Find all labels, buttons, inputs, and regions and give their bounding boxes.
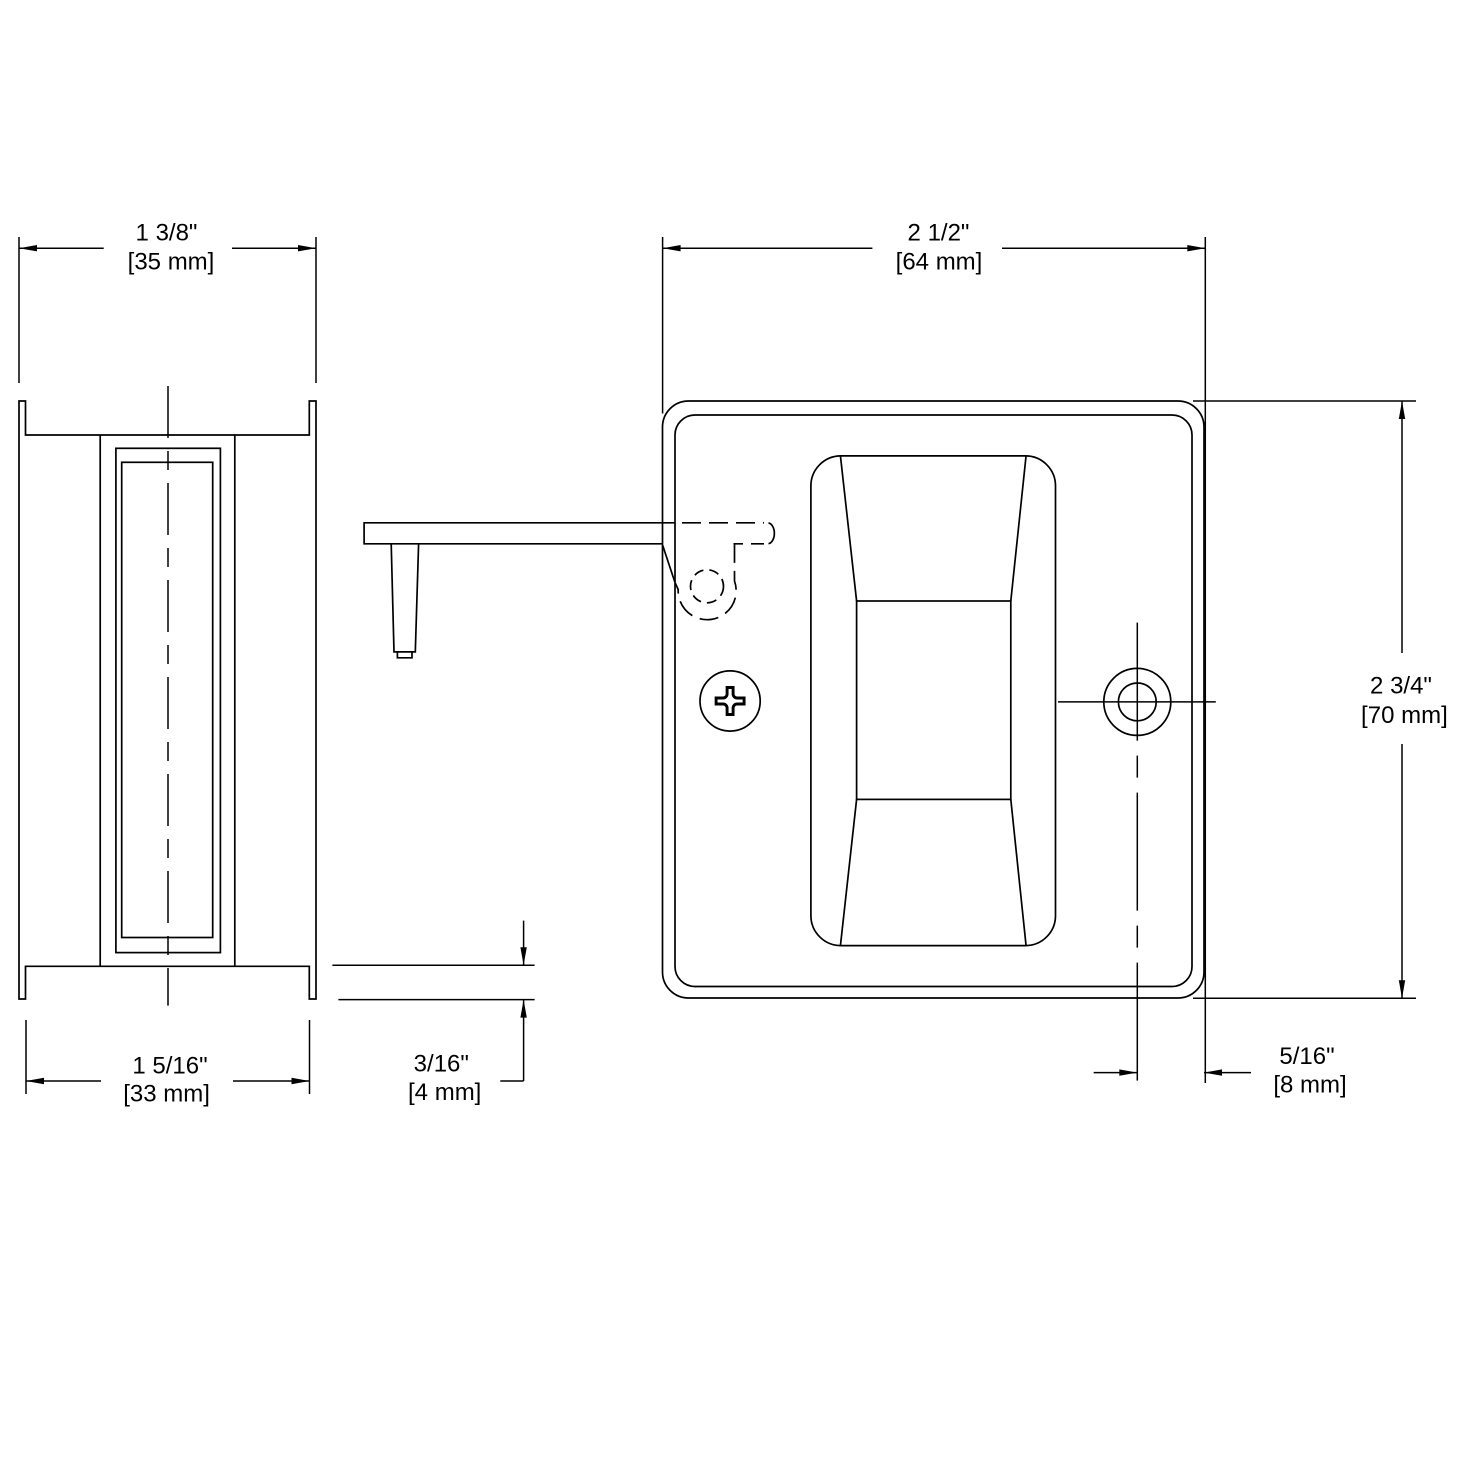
svg-text:1 5/16": 1 5/16" — [132, 1052, 207, 1079]
svg-text:2 3/4": 2 3/4" — [1370, 672, 1432, 699]
svg-text:[64 mm]: [64 mm] — [896, 248, 983, 275]
svg-text:[70 mm]: [70 mm] — [1361, 702, 1448, 729]
svg-text:5/16": 5/16" — [1279, 1043, 1334, 1070]
svg-text:2 1/2": 2 1/2" — [908, 219, 970, 246]
svg-text:[33 mm]: [33 mm] — [123, 1081, 210, 1108]
svg-text:[35 mm]: [35 mm] — [128, 248, 215, 275]
svg-text:[4 mm]: [4 mm] — [408, 1079, 481, 1106]
svg-text:3/16": 3/16" — [414, 1051, 469, 1078]
svg-text:1 3/8": 1 3/8" — [136, 219, 198, 246]
svg-text:[8 mm]: [8 mm] — [1273, 1071, 1346, 1098]
